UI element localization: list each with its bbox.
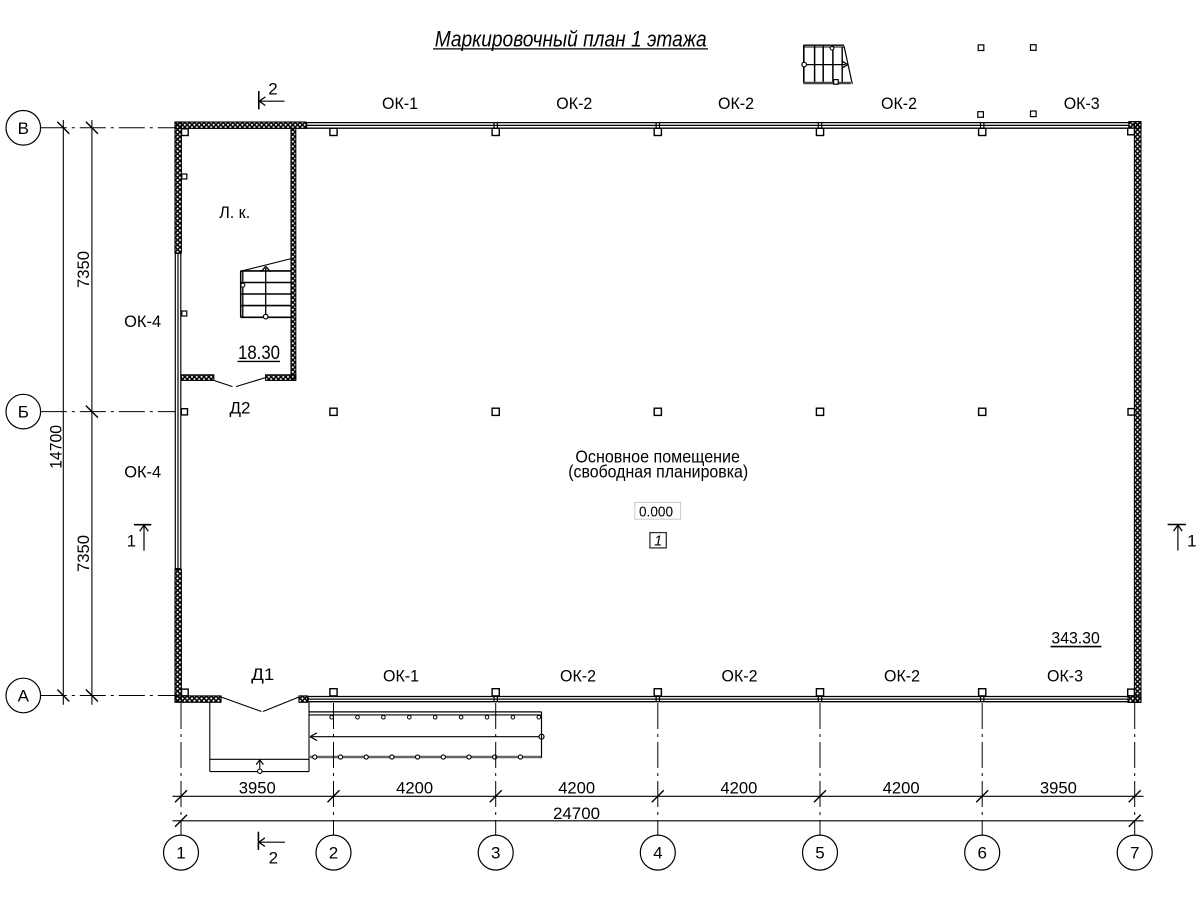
svg-text:ОК-2: ОК-2 xyxy=(556,94,592,113)
svg-text:ОК-2: ОК-2 xyxy=(881,94,917,113)
svg-text:ОК-2: ОК-2 xyxy=(718,94,754,113)
svg-text:343.30: 343.30 xyxy=(1051,628,1099,647)
svg-text:2: 2 xyxy=(268,80,277,99)
svg-text:ОК-1: ОК-1 xyxy=(382,94,418,113)
svg-text:24700: 24700 xyxy=(553,805,600,823)
svg-text:7350: 7350 xyxy=(74,251,93,288)
svg-text:(свободная планировка): (свободная планировка) xyxy=(568,462,748,482)
svg-text:А: А xyxy=(18,687,30,706)
svg-text:4200: 4200 xyxy=(396,778,433,797)
svg-text:6: 6 xyxy=(977,844,986,863)
svg-text:3950: 3950 xyxy=(239,778,276,797)
svg-text:Б: Б xyxy=(18,403,29,422)
svg-text:0.000: 0.000 xyxy=(639,504,673,520)
svg-text:4200: 4200 xyxy=(883,778,920,797)
svg-text:В: В xyxy=(18,119,29,138)
svg-text:ОК-4: ОК-4 xyxy=(124,462,161,481)
svg-text:ОК-2: ОК-2 xyxy=(722,666,758,685)
svg-text:4: 4 xyxy=(653,844,662,863)
svg-text:Д1: Д1 xyxy=(251,665,274,684)
svg-text:7: 7 xyxy=(1130,844,1139,863)
svg-text:1: 1 xyxy=(176,844,185,863)
svg-text:Маркировочный план 1 этажа: Маркировочный план 1 этажа xyxy=(435,27,707,52)
svg-text:ОК-3: ОК-3 xyxy=(1047,666,1083,685)
svg-text:3950: 3950 xyxy=(1040,778,1077,797)
svg-text:1: 1 xyxy=(127,532,136,551)
svg-text:4200: 4200 xyxy=(558,778,595,797)
svg-text:2: 2 xyxy=(329,844,338,863)
svg-text:1: 1 xyxy=(1187,532,1196,551)
svg-text:ОК-3: ОК-3 xyxy=(1064,94,1100,113)
svg-text:Л. к.: Л. к. xyxy=(219,203,250,222)
svg-text:5: 5 xyxy=(815,844,824,863)
svg-text:1: 1 xyxy=(654,533,662,549)
svg-text:3: 3 xyxy=(491,844,500,863)
svg-text:Д2: Д2 xyxy=(230,398,251,417)
svg-text:7350: 7350 xyxy=(74,535,93,572)
svg-text:2: 2 xyxy=(269,848,278,867)
svg-text:ОК-1: ОК-1 xyxy=(383,666,419,685)
svg-text:ОК-2: ОК-2 xyxy=(560,666,596,685)
svg-text:ОК-2: ОК-2 xyxy=(884,666,920,685)
svg-text:14700: 14700 xyxy=(46,425,65,469)
svg-text:ОК-4: ОК-4 xyxy=(124,312,161,331)
svg-text:4200: 4200 xyxy=(720,778,757,797)
